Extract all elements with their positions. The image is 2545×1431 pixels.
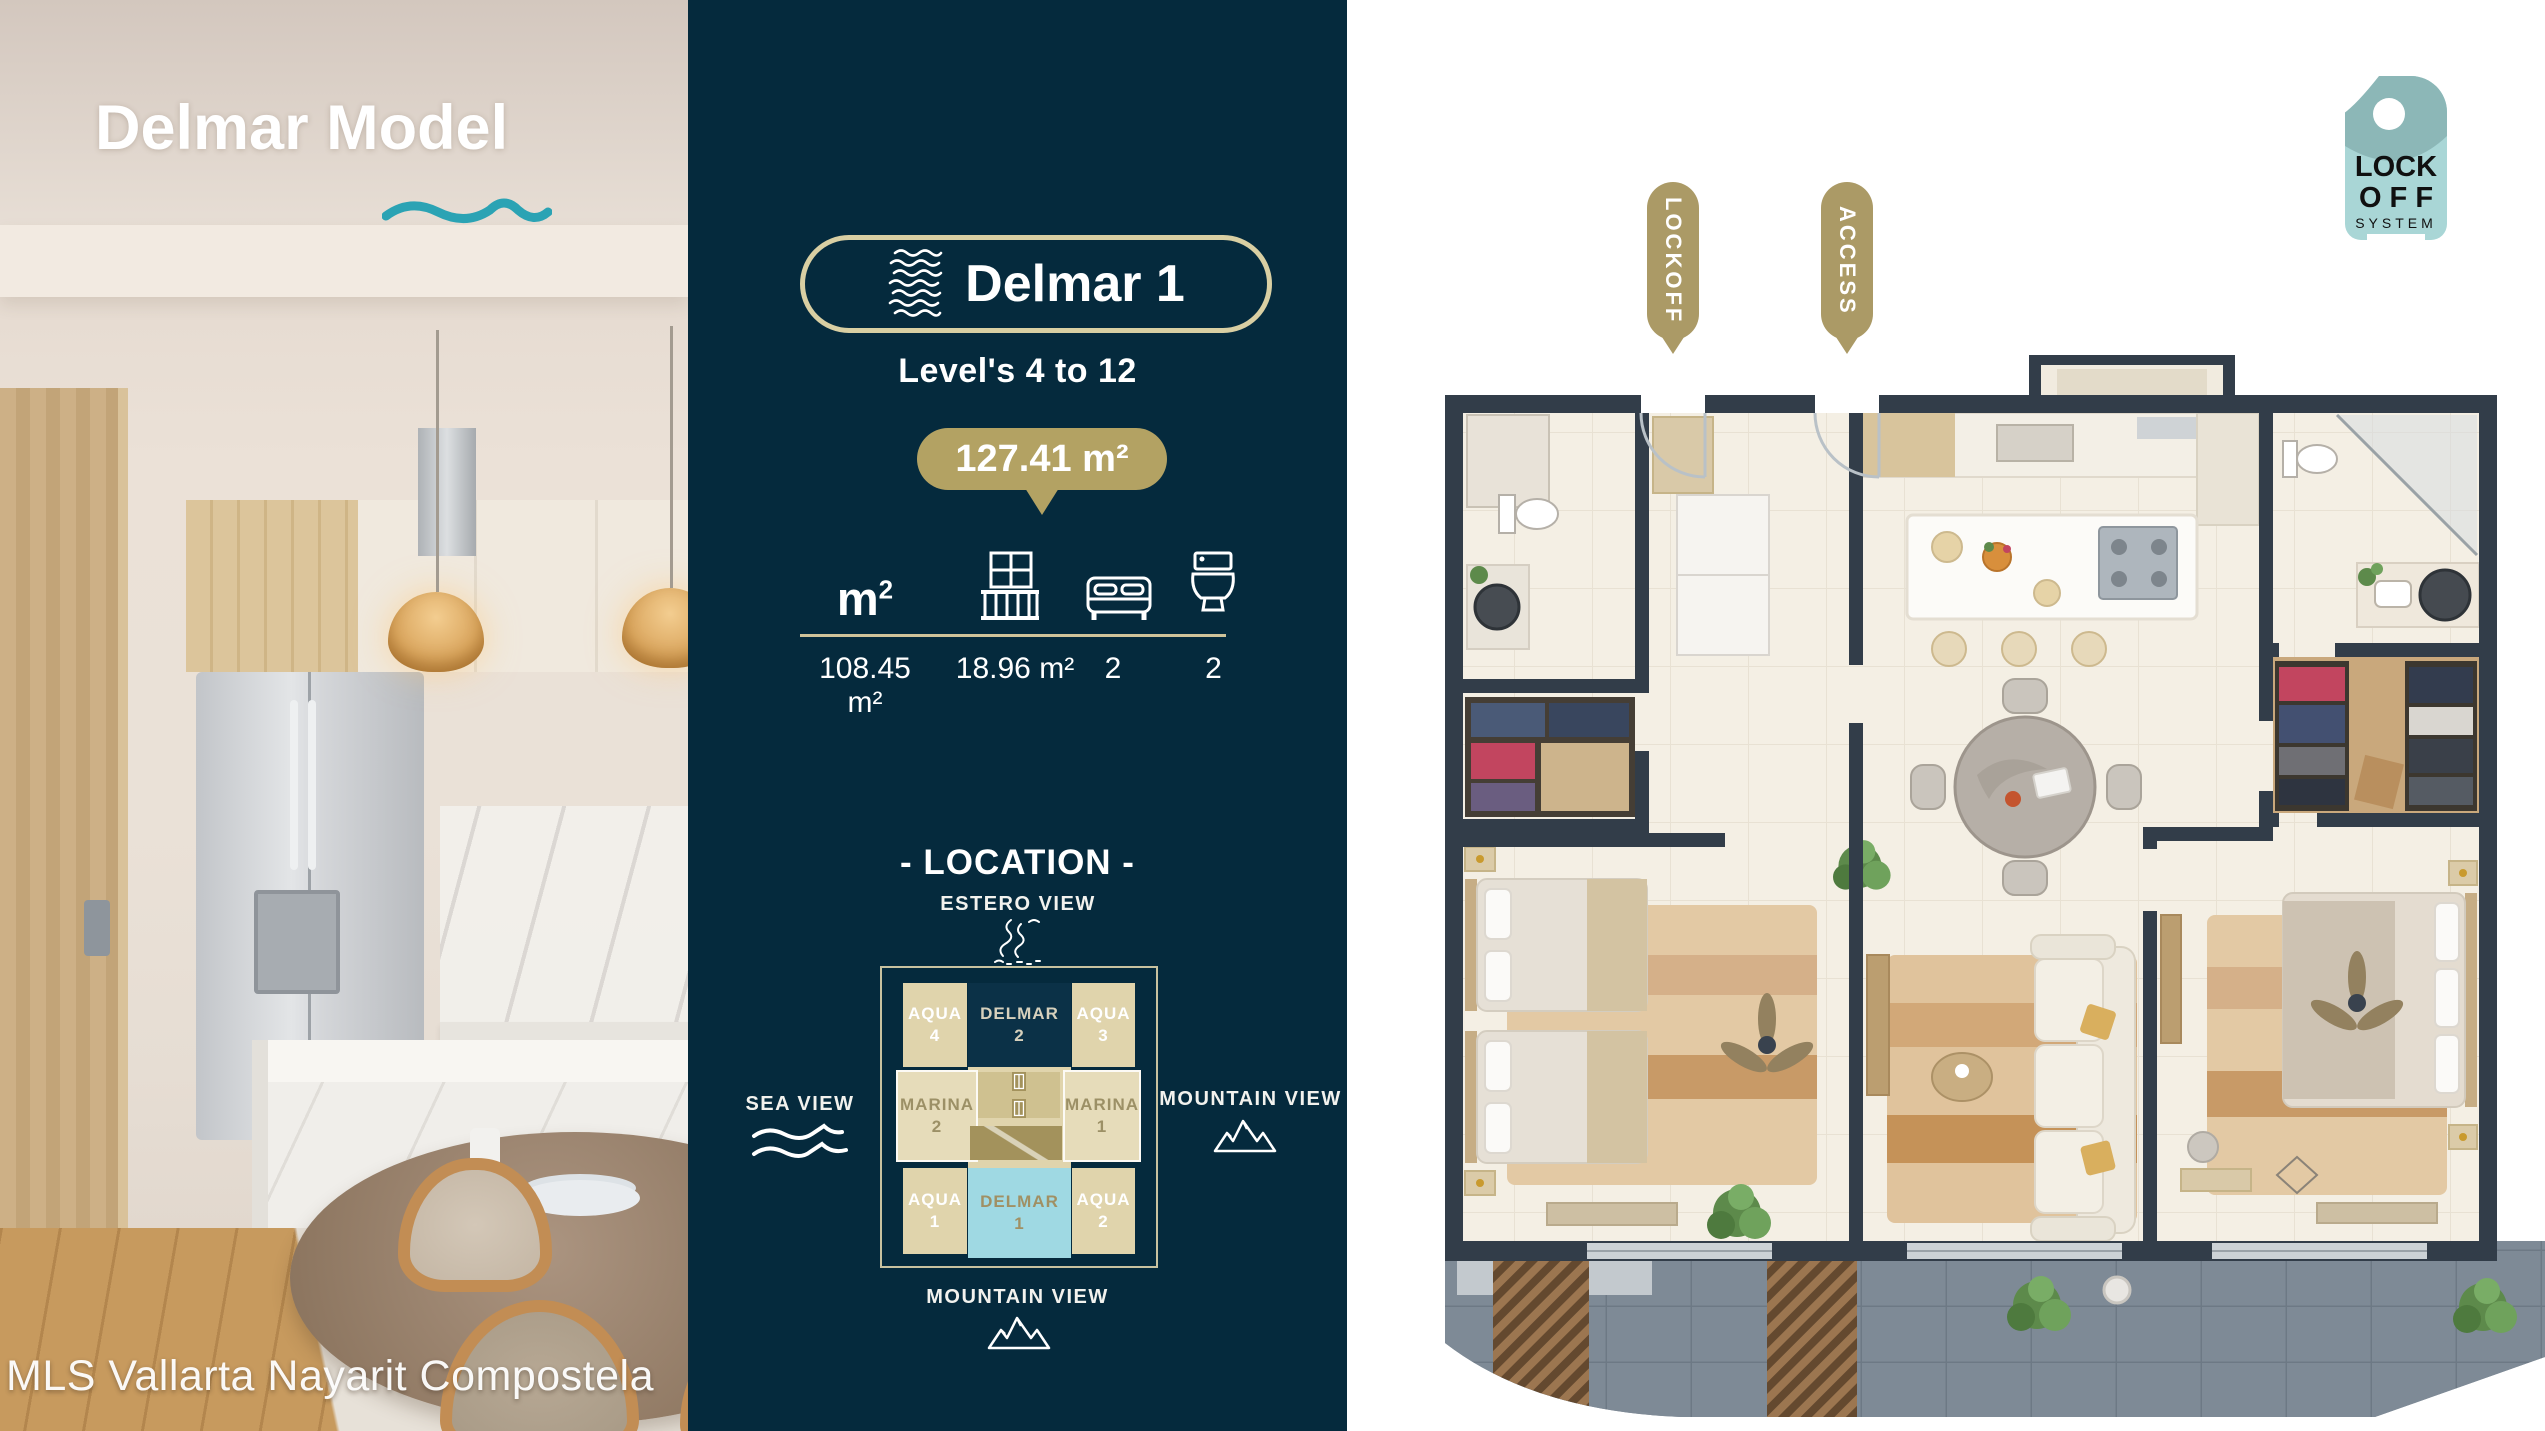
sea-view-label: SEA VIEW (720, 1093, 880, 1116)
elevator-icon (1008, 1072, 1030, 1091)
svg-text:SYSTEM: SYSTEM (2355, 215, 2437, 231)
photo-entry-door (0, 388, 128, 1233)
grid-cell-aqua-1: AQUA1 (903, 1168, 967, 1254)
grid-cell-marina-2: MARINA2 (896, 1070, 978, 1162)
toilet-icon (1180, 548, 1246, 626)
stats-divider (800, 634, 1226, 637)
unit-badge: Delmar 1 (800, 235, 1272, 333)
balcony-area-value: 18.96 m² (940, 652, 1090, 686)
title-wave-icon (382, 190, 552, 232)
badge-pointer (1025, 488, 1059, 515)
location-heading: - LOCATION - (688, 843, 1347, 883)
photo-wood-cabinet (186, 500, 358, 672)
lockoff-tag: LOCKOFF (1647, 182, 1699, 354)
bed-icon (1084, 560, 1154, 626)
bed (2283, 893, 2477, 1107)
interior-photo-panel: Delmar Model MLS Vallarta Nayarit Compos… (0, 0, 688, 1431)
bathrooms-value: 2 (1166, 652, 1261, 686)
access-tag: ACCESS (1821, 182, 1873, 354)
grid-cell-delmar-1-highlighted: DELMAR1 (968, 1168, 1071, 1258)
waves-stack-icon (887, 247, 945, 321)
grid-cell-aqua-4: AQUA4 (903, 983, 967, 1067)
area-m2-icon: m2 (800, 548, 930, 626)
estero-river-icon (991, 918, 1045, 966)
photo-door-lock (84, 900, 110, 956)
unit-name: Delmar 1 (965, 254, 1185, 314)
bed (1465, 1031, 1647, 1163)
svg-text:O F F: O F F (2359, 182, 2433, 214)
watermark: MLS Vallarta Nayarit Compostela (6, 1352, 666, 1401)
balcony-icon (946, 550, 1074, 626)
sea-waves-icon (750, 1122, 850, 1170)
sliding-doors (1587, 1243, 2427, 1259)
photo-counter (440, 1022, 688, 1042)
elevators (978, 1072, 1060, 1118)
grid-cell-delmar-2: DELMAR2 (968, 983, 1071, 1067)
location-grid: AQUA4 DELMAR2 AQUA3 MARINA2 MARINA1 AQUA… (880, 966, 1158, 1268)
page-title: Delmar Model (95, 92, 688, 164)
mountain-view-right-label: MOUNTAIN VIEW (1158, 1088, 1343, 1111)
floorplan-panel: LOCKOFF ACCESS LOCK O F F SYSTEM (1347, 0, 2545, 1431)
estero-view-label: ESTERO VIEW (868, 893, 1168, 916)
sofa (2031, 935, 2135, 1241)
total-area-badge: 127.41 m² (917, 428, 1167, 490)
tag-pointer (1660, 334, 1686, 354)
grid-cell-aqua-3: AQUA3 (1072, 983, 1135, 1067)
mountain-icon (987, 1312, 1051, 1352)
lockoff-system-logo: LOCK O F F SYSTEM (2335, 76, 2485, 254)
stairs-corridor (970, 1126, 1062, 1160)
grid-cell-marina-1: MARINA1 (1063, 1070, 1141, 1162)
levels-text: Level's 4 to 12 (688, 352, 1347, 391)
elevator-icon (1008, 1099, 1030, 1118)
photo-ceiling-beam (0, 225, 688, 297)
svg-text:LOCK: LOCK (2355, 151, 2437, 183)
photo-marble-backsplash (440, 806, 688, 1024)
mountain-icon (1213, 1115, 1277, 1155)
floor-plan (1437, 355, 2545, 1431)
bedrooms-value: 2 (1083, 652, 1143, 686)
interior-area-value: 108.45 m² (800, 652, 930, 720)
photo-fridge-handles (290, 700, 298, 870)
unit-info-panel: Delmar 1 Level's 4 to 12 127.41 m² m2 (688, 0, 1347, 1431)
bed (1465, 879, 1647, 1011)
grid-cell-aqua-2: AQUA2 (1072, 1168, 1135, 1254)
tag-pointer (1834, 334, 1860, 354)
photo-range-hood (418, 428, 476, 556)
mountain-view-bottom-label: MOUNTAIN VIEW (688, 1286, 1347, 1309)
